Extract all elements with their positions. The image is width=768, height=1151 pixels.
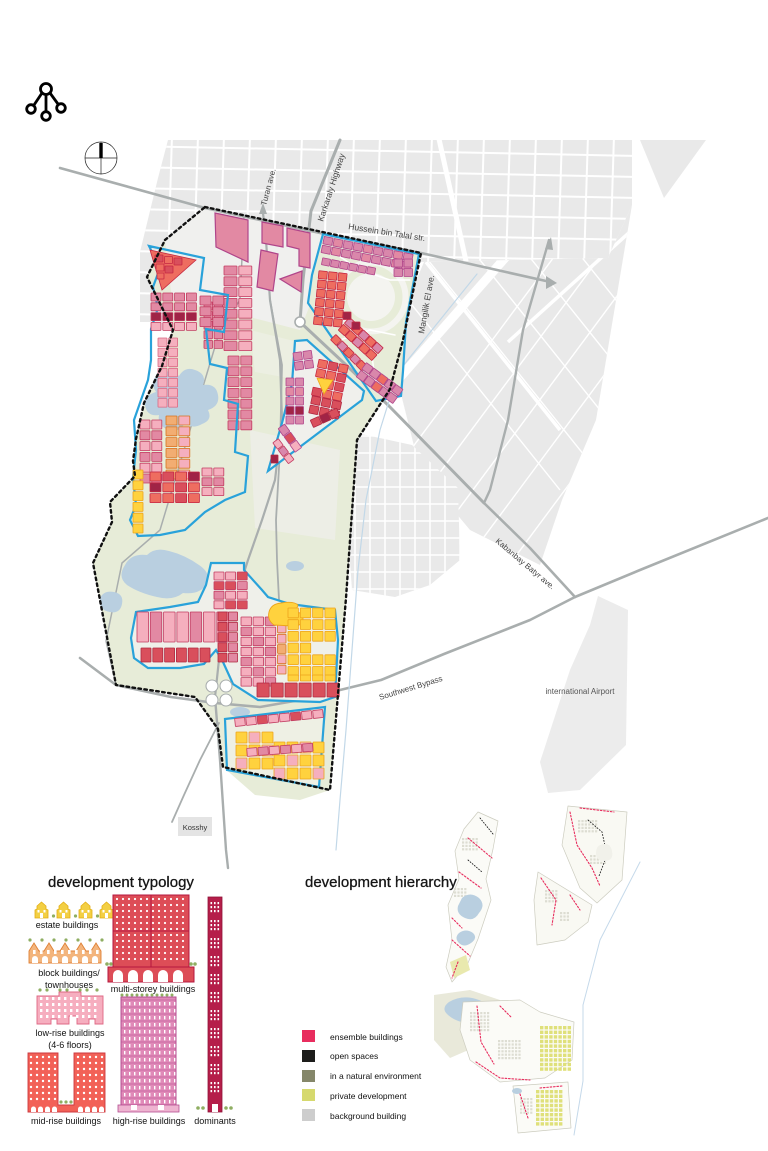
svg-text:estate buildings: estate buildings [36, 920, 99, 930]
svg-text:townhouses: townhouses [45, 980, 94, 990]
svg-text:international Airport: international Airport [546, 687, 616, 696]
svg-text:ensemble buildings: ensemble buildings [330, 1032, 403, 1042]
svg-text:development hierarchy: development hierarchy [305, 874, 457, 891]
svg-text:block buildings/: block buildings/ [38, 968, 100, 978]
svg-text:Kosshy: Kosshy [183, 823, 208, 832]
svg-text:mid-rise buildings: mid-rise buildings [31, 1116, 102, 1126]
svg-text:open spaces: open spaces [330, 1051, 378, 1061]
svg-text:development typology: development typology [48, 874, 194, 891]
svg-text:background building: background building [330, 1111, 406, 1121]
svg-text:low-rise buildings: low-rise buildings [35, 1028, 105, 1038]
svg-text:multi-storey buildings: multi-storey buildings [111, 984, 196, 994]
svg-text:in a natural environment: in a natural environment [330, 1071, 422, 1081]
svg-text:(4-6 floors): (4-6 floors) [48, 1040, 92, 1050]
svg-text:private development: private development [330, 1091, 407, 1101]
svg-text:dominants: dominants [194, 1116, 236, 1126]
svg-text:high-rise buildings: high-rise buildings [113, 1116, 186, 1126]
